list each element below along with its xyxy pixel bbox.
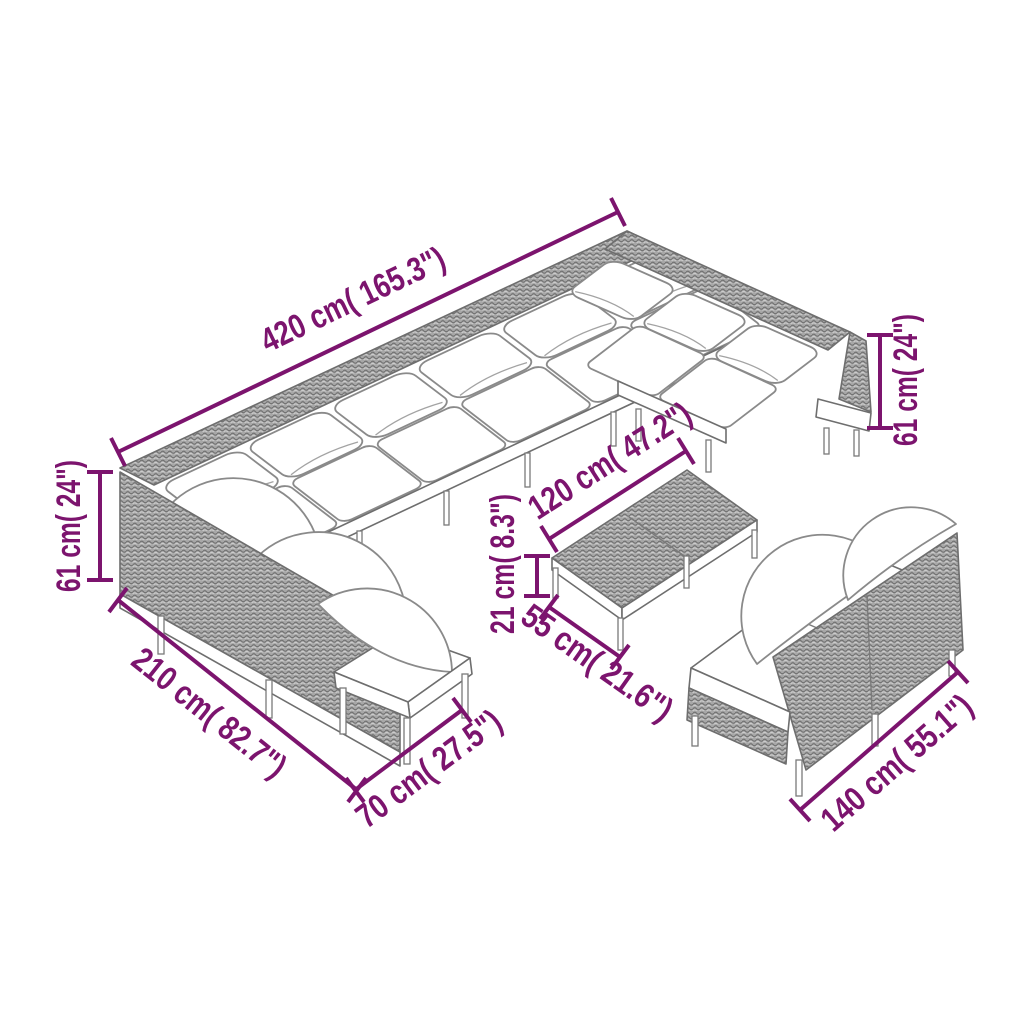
tick	[541, 526, 557, 552]
tick	[611, 198, 625, 226]
dimension-diagram-page: 420 cm( 165.3") 61 cm( 24") 61 cm( 24") …	[0, 0, 1024, 1024]
furniture-dimension-diagram: 420 cm( 165.3") 61 cm( 24") 61 cm( 24") …	[0, 0, 1024, 1024]
dimension-back-height-left: 61 cm( 24")	[50, 460, 113, 592]
dim-label-61-left: 61 cm( 24")	[50, 460, 88, 592]
tick	[678, 438, 694, 464]
tick	[111, 438, 125, 466]
end-panel	[839, 332, 871, 412]
dim-label-61-right: 61 cm( 24")	[887, 314, 925, 446]
dim-label-21: 21 cm( 8.3")	[484, 494, 522, 634]
dim-label-55: 55 cm( 21.6")	[514, 597, 680, 730]
dimension-table-depth: 55 cm( 21.6")	[514, 595, 680, 729]
dimension-back-height-right: 61 cm( 24")	[867, 314, 925, 446]
corner-sofa-left-wing	[120, 472, 472, 766]
